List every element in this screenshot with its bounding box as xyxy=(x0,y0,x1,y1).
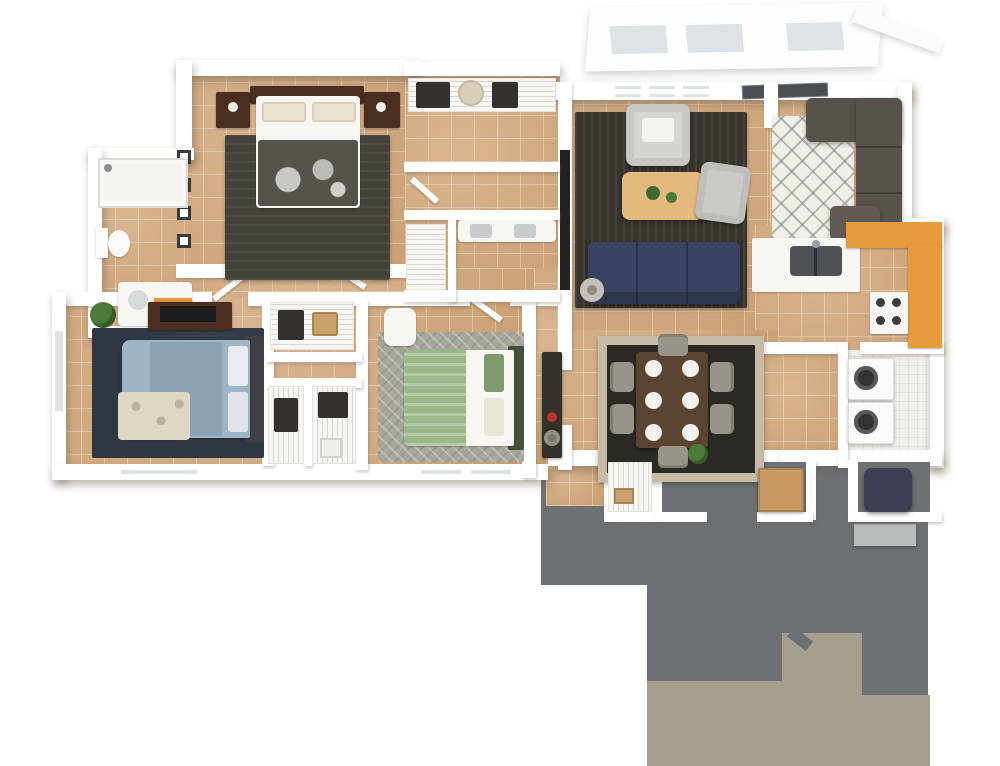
dinner-plate xyxy=(682,424,699,441)
dinner-plate xyxy=(682,392,699,409)
wall-laundry-divider xyxy=(838,342,848,468)
dining-chair xyxy=(658,334,688,356)
hanging-clothes xyxy=(278,310,304,340)
hallbath-sink xyxy=(470,224,492,238)
hanging-clothes xyxy=(274,398,298,432)
canopy-window-pane xyxy=(785,21,846,52)
tv-panel xyxy=(560,150,570,290)
living-window-slit xyxy=(682,93,710,98)
wall-storage-left xyxy=(848,460,858,518)
bath-sink xyxy=(128,290,148,310)
hat-box xyxy=(458,80,484,106)
toilet-tank xyxy=(96,228,108,258)
master-throw-blanket xyxy=(258,140,358,206)
hanging-clothes xyxy=(492,82,518,108)
living-window-slit xyxy=(648,85,676,90)
canopy-window-pane xyxy=(684,23,745,54)
wall-porch-bottom xyxy=(757,512,813,522)
bedroom2-side-window xyxy=(54,330,64,412)
water-heater xyxy=(864,468,912,512)
living-window-slit xyxy=(682,85,710,90)
dinner-plate xyxy=(645,424,662,441)
dryer-door xyxy=(854,410,878,434)
laundry-hall-floor xyxy=(760,350,845,465)
wall-closet-split xyxy=(304,384,312,466)
entry-closet-basket xyxy=(614,488,634,504)
bedroom2-tv xyxy=(160,306,216,322)
stove-burner xyxy=(876,316,885,325)
living-armchair-right xyxy=(694,161,752,225)
balcony-canopy xyxy=(585,2,883,71)
wall-dressing-bath xyxy=(404,210,560,220)
wall-entry-closet-bottom xyxy=(604,512,662,522)
bedroom2-pillow xyxy=(228,346,248,386)
dinner-plate xyxy=(645,392,662,409)
master-pillow xyxy=(312,102,356,122)
dining-chair xyxy=(610,404,634,434)
bedroom2-floral-throw xyxy=(118,392,190,440)
bedroom3-pillow xyxy=(484,398,504,436)
wall-art-frames xyxy=(177,234,191,248)
wall-porch-bottom xyxy=(655,512,707,522)
dinner-plate xyxy=(645,360,662,377)
toilet-bowl xyxy=(108,230,130,257)
wall-porch-right xyxy=(806,460,816,520)
entry-glass-door xyxy=(742,83,828,100)
canopy-window-pane xyxy=(608,24,669,55)
table-plant xyxy=(646,186,660,200)
shower-head xyxy=(104,164,112,172)
bedroom3-green-blanket xyxy=(404,350,466,446)
living-coffee-table xyxy=(622,172,704,220)
wall-master-top xyxy=(176,60,420,76)
armchair-pillow xyxy=(642,118,674,142)
kitchen-sink xyxy=(790,246,842,276)
wall-laundry-hall-top xyxy=(755,342,845,354)
nightstand-lamp xyxy=(228,102,238,112)
closet-basket xyxy=(312,312,338,336)
patio-concrete xyxy=(647,585,782,681)
wall-closet-mid xyxy=(266,352,362,362)
living-sofa xyxy=(588,242,740,304)
patio-walkway xyxy=(647,681,782,766)
dining-chair xyxy=(610,362,634,392)
wall-closet-dressing xyxy=(404,162,560,172)
living-window-slit xyxy=(614,85,642,90)
wall-art-frames xyxy=(177,206,191,220)
console-wine xyxy=(547,412,557,422)
bedroom3-chair xyxy=(384,308,416,346)
dining-chair xyxy=(710,362,734,392)
wall-midblock-bottom xyxy=(404,290,560,302)
patio-walkway xyxy=(782,633,862,766)
kitchen-faucet xyxy=(812,240,820,248)
floor-plan-scene xyxy=(0,0,1000,766)
master-pillow xyxy=(262,102,306,122)
closet-hamper xyxy=(320,438,342,458)
stove-burner xyxy=(892,316,901,325)
table-plant xyxy=(666,192,677,203)
wall-bed3-right xyxy=(522,292,536,478)
wall-midblock-top xyxy=(404,62,560,76)
wall-master-left xyxy=(176,60,192,160)
patio-stoop-step xyxy=(854,524,916,546)
dining-chair xyxy=(658,446,688,468)
hanging-clothes xyxy=(416,82,450,108)
bedroom3-bottom-window xyxy=(470,469,512,475)
kitchen-stove xyxy=(870,292,908,334)
linen-closet-shelf xyxy=(406,224,446,290)
patio-concrete xyxy=(862,585,928,695)
entry-closet-shelf xyxy=(608,462,652,512)
bedroom2-bottom-window xyxy=(120,469,198,475)
bedroom2-plant xyxy=(90,302,116,328)
bedroom3-bottom-window xyxy=(420,469,462,475)
nightstand-lamp xyxy=(376,102,386,112)
patio-walkway xyxy=(862,695,930,766)
dinner-plate xyxy=(682,360,699,377)
wall-linen-right xyxy=(448,220,456,302)
stove-burner xyxy=(876,298,885,307)
dining-chair xyxy=(710,404,734,434)
stove-burner xyxy=(892,298,901,307)
floor-lamp xyxy=(580,278,604,302)
living-window-slit xyxy=(648,93,676,98)
bedroom3-pillow xyxy=(484,354,504,392)
porch-cabinet xyxy=(758,468,804,512)
console-stool xyxy=(544,430,560,446)
hallbath-sink xyxy=(514,224,536,238)
washer-door xyxy=(854,366,878,390)
bedroom2-pillow xyxy=(228,392,248,432)
dining-plant xyxy=(688,444,708,464)
hanging-clothes xyxy=(318,392,348,418)
kitchen-counter-right xyxy=(908,244,942,348)
living-window-slit xyxy=(614,93,642,98)
wall-storage-bottom xyxy=(848,512,942,522)
